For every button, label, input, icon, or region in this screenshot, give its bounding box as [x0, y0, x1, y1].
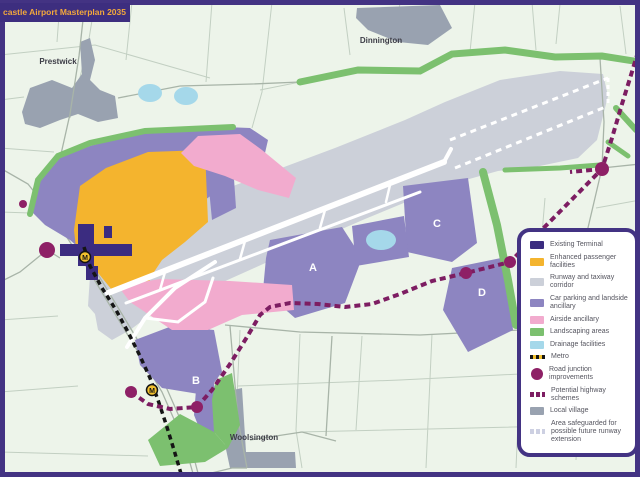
road-junction-circle — [460, 267, 472, 279]
swatch-landscaping — [530, 328, 544, 336]
drainage-pond-2 — [174, 87, 198, 105]
village-label-dinnington: Dinnington — [360, 36, 402, 45]
legend-item-road-junction: Road junction improvements — [530, 366, 628, 382]
zone-label-a: A — [309, 262, 317, 274]
swatch-airside-ancillary — [530, 316, 544, 324]
metro-station-label: M — [82, 255, 88, 262]
swatch-drainage — [530, 341, 544, 349]
legend-label: Local village — [550, 407, 628, 415]
village-label-woolsington: Woolsington — [230, 433, 278, 442]
legend-item-local-village: Local village — [530, 407, 628, 415]
legend-item-landscaping: Landscaping areas — [530, 328, 628, 336]
legend-label: Drainage facilities — [550, 341, 628, 349]
zone-label-c: C — [433, 218, 441, 230]
metro-station-1: M — [80, 252, 91, 263]
legend-label: Existing Terminal — [550, 241, 628, 249]
legend-item-runway-corridor: Runway and taxiway corridor — [530, 274, 628, 290]
legend-item-safeguarded-area: Area safeguarded for possible future run… — [530, 420, 628, 444]
highway-dashes-symbol — [530, 392, 545, 397]
legend-item-potential-highway: Potential highway schemes — [530, 387, 628, 403]
road-junction-circle — [191, 401, 203, 413]
legend-label: Metro — [551, 353, 628, 361]
legend-label: Potential highway schemes — [551, 387, 628, 403]
swatch-runway-corridor — [530, 278, 544, 286]
road-junction-circle — [595, 162, 609, 176]
swatch-enhanced-passenger — [530, 258, 544, 266]
legend-item-existing-terminal: Existing Terminal — [530, 241, 628, 249]
legend-label: Landscaping areas — [550, 328, 628, 336]
legend-item-drainage: Drainage facilities — [530, 341, 628, 349]
swatch-car-parking — [530, 299, 544, 307]
zone-label-d: D — [478, 287, 486, 299]
legend-label: Car parking and landside ancillary — [550, 295, 628, 311]
legend-label: Enhanced passenger facilities — [550, 254, 628, 270]
swatch-existing-terminal — [530, 241, 544, 249]
road-junction-circle — [125, 386, 137, 398]
legend-item-enhanced-passenger: Enhanced passenger facilities — [530, 254, 628, 270]
masterplan-map-page: M M A B C D Prestwick Dinnington Woolsin… — [0, 0, 640, 480]
road-junction-circle — [19, 200, 27, 208]
metro-line-symbol — [530, 355, 545, 359]
legend-label: Airside ancillary — [550, 316, 628, 324]
safeguard-dashes-symbol — [530, 429, 545, 434]
village-label-prestwick: Prestwick — [39, 57, 77, 66]
legend-label: Area safeguarded for possible future run… — [551, 420, 628, 444]
map-title: castle Airport Masterplan 2035 — [3, 7, 126, 17]
legend-item-car-parking: Car parking and landside ancillary — [530, 295, 628, 311]
legend-label: Runway and taxiway corridor — [550, 274, 628, 290]
road-junction-circle — [504, 256, 516, 268]
zone-label-b: B — [192, 375, 200, 387]
metro-station-label: M — [149, 388, 155, 395]
legend-item-airside-ancillary: Airside ancillary — [530, 316, 628, 324]
swatch-local-village — [530, 407, 544, 415]
legend-item-metro: Metro — [530, 353, 628, 361]
metro-station-2: M — [147, 385, 158, 396]
road-junction-circle — [39, 242, 55, 258]
drainage-pond-3 — [366, 230, 396, 250]
junction-circle-symbol — [531, 368, 543, 380]
map-title-banner: castle Airport Masterplan 2035 — [0, 3, 130, 22]
legend: Existing Terminal Enhanced passenger fac… — [517, 228, 639, 457]
drainage-pond-1 — [138, 84, 162, 102]
legend-label: Road junction improvements — [549, 366, 628, 382]
